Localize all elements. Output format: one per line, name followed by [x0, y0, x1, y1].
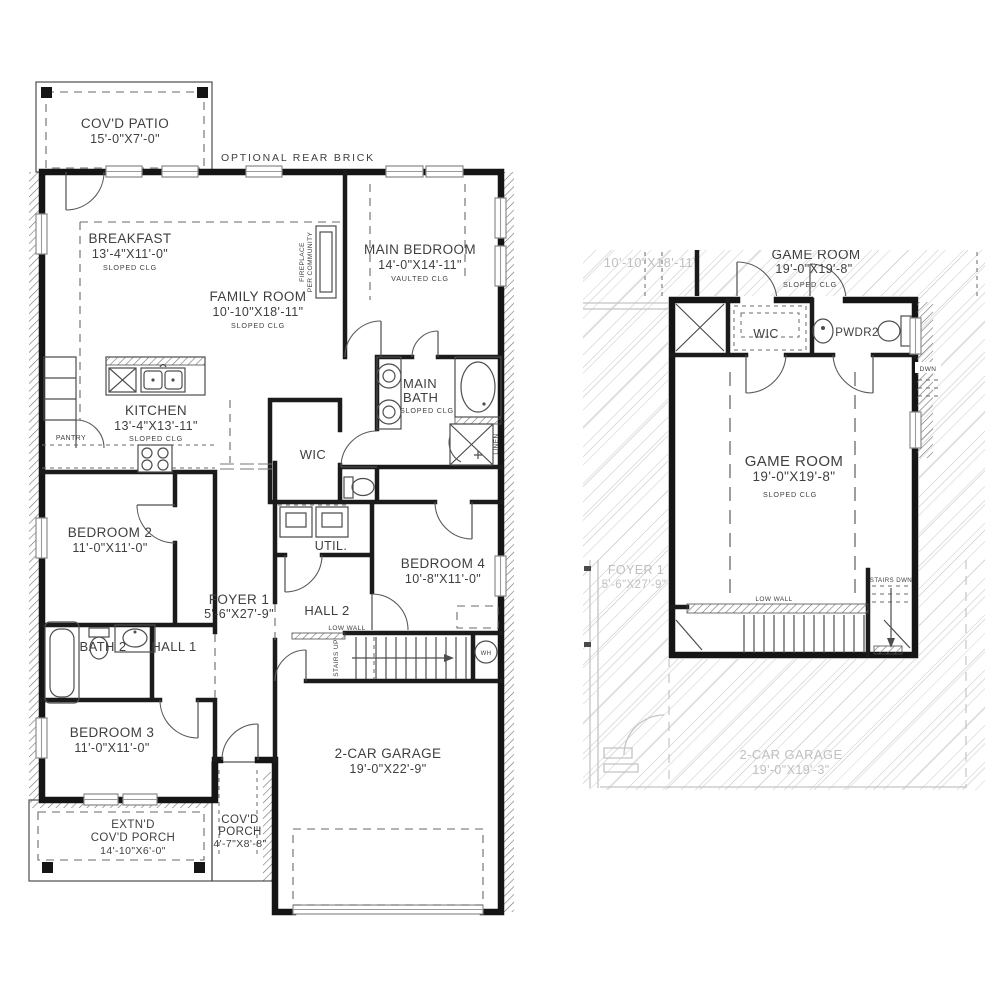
clipped-game-room-name: GAME ROOM	[771, 247, 860, 262]
covd-patio-dims: 15'-0"X7'-0"	[90, 132, 160, 146]
main-bedroom-dims: 14'-0"X14'-11"	[378, 258, 462, 272]
bedroom4-name: BEDROOM 4	[401, 556, 486, 571]
family-room-name: FAMILY ROOM	[210, 289, 307, 304]
ghost-foyer-dims: 5'-6"X27'-9"	[602, 579, 667, 591]
bath2-label: BATH 2	[80, 639, 127, 654]
main-bedroom-clg: VAULTED CLG	[391, 274, 449, 283]
foyer-dims: 5'-6"X27'-9"	[204, 607, 274, 621]
bath2-tub	[45, 622, 79, 703]
foyer-name: FOYER 1	[209, 592, 270, 607]
ghost-jamb-2	[584, 642, 591, 647]
extnd-porch-name-2: COV'D PORCH	[91, 832, 176, 844]
porch-post-right	[194, 862, 205, 873]
breakfast-name: BREAKFAST	[88, 231, 171, 246]
pantry-label: PANTRY	[56, 435, 86, 442]
covd-porch-name-1: COV'D	[221, 814, 258, 826]
floorplan-page: FIREPLACE PER COMMUNITY	[0, 0, 1000, 1000]
garage-door-dashed	[293, 829, 483, 905]
pantry-shelves	[44, 357, 76, 420]
fireplace-note-line2: PER COMMUNITY	[307, 232, 314, 293]
bedroom2-name: BEDROOM 2	[68, 525, 153, 540]
stairs-up: STAIRS UP	[292, 633, 466, 679]
stairs-dwn-label: STAIRS DWN	[870, 577, 912, 584]
island-cabinet-x	[109, 368, 136, 392]
f2-low-wall-label: LOW WALL	[755, 596, 792, 603]
first-floor-plan: FIREPLACE PER COMMUNITY	[29, 82, 514, 914]
ghost-jamb-1	[584, 566, 591, 571]
low-wall-label: LOW WALL	[328, 625, 365, 632]
linen-label: LINEN	[493, 433, 500, 454]
stair-arrowhead	[444, 654, 454, 662]
extnd-porch-name-1: EXTN'D	[111, 819, 155, 831]
game-room-name: GAME ROOM	[745, 453, 844, 470]
breakfast-clg: SLOPED CLG	[103, 263, 157, 272]
main-bath-vanity	[377, 357, 401, 429]
f2-low-wall-strip	[687, 604, 868, 613]
hall1-label: HALL 1	[151, 639, 196, 654]
util-label: UTIL.	[315, 539, 348, 553]
main-bedroom-name: MAIN BEDROOM	[364, 242, 476, 257]
ghost-garage-dims: 19'-0"X19'-3"	[752, 763, 829, 777]
sink-1	[377, 364, 401, 388]
family-room-dims: 10'-10"X18'-11"	[213, 305, 304, 319]
wic2-label: WIC	[753, 327, 779, 341]
utility-machines	[278, 505, 350, 537]
ghost-foyer-name: FOYER 1	[608, 563, 664, 577]
floorplan-drawing: FIREPLACE PER COMMUNITY	[0, 0, 1000, 1000]
clipped-game-room-dims: 19'-0"X19'-8"	[775, 262, 852, 276]
stairs-up-label: STAIRS UP	[333, 639, 340, 676]
ghost-garage-name: 2-CAR GARAGE	[739, 747, 842, 762]
main-bath-name-2: BATH	[403, 390, 438, 405]
range	[42, 445, 215, 472]
bedroom3-name: BEDROOM 3	[70, 725, 155, 740]
clipped-game-room-clg: SLOPED CLG	[783, 280, 837, 289]
cased-opening-marks	[220, 464, 272, 469]
main-bath-tub	[455, 357, 501, 424]
kitchen-name: KITCHEN	[125, 403, 187, 418]
island-hatch	[106, 357, 205, 365]
hall2-label: HALL 2	[304, 603, 349, 618]
bedroom4-dims: 10'-8"X11'-0"	[405, 572, 481, 586]
garage-dims: 19'-0"X22'-9"	[349, 762, 426, 776]
family-room-clg: SLOPED CLG	[231, 321, 285, 330]
kitchen-clg: SLOPED CLG	[129, 434, 183, 443]
extnd-porch-dims: 14'-10"X6'-0"	[100, 845, 166, 857]
patio-post-left	[41, 87, 52, 98]
breakfast-dims: 13'-4"X11'-0"	[92, 247, 168, 261]
covd-porch-name-2: PORCH	[218, 826, 262, 838]
fireplace-box	[316, 226, 336, 298]
main-bath-shower	[449, 424, 493, 465]
patio-post-right	[197, 87, 208, 98]
fireplace: FIREPLACE PER COMMUNITY	[299, 226, 336, 298]
bedroom3-dims: 11'-0"X11'-0"	[74, 741, 149, 755]
bedroom4-closet-dashed	[457, 606, 498, 628]
bedroom2-dims: 11'-0"X11'-0"	[72, 541, 147, 555]
ghost-family-dims: 10'-10"X18'-11"	[604, 255, 698, 270]
sink-2	[377, 400, 401, 424]
water-heater: WH	[475, 641, 497, 663]
wc-toilet	[344, 477, 374, 498]
counter-dashed	[42, 445, 215, 468]
pwdr2-label: PWDR2	[835, 327, 879, 339]
kitchen-dims: 13'-4"X13'-11"	[114, 419, 198, 433]
game-room-clg: SLOPED CLG	[763, 490, 817, 499]
second-floor-plan: 10'-10"X18'-11" FOYER 1 5'-6"X27'-9" 2-C…	[583, 247, 985, 790]
fireplace-note-line1: FIREPLACE	[299, 242, 306, 282]
main-bath-clg: SLOPED CLG	[400, 406, 454, 415]
main-bath-name-1: MAIN	[403, 376, 437, 391]
wic-label: WIC	[300, 447, 326, 462]
low-wall-strip	[292, 633, 345, 639]
optional-rear-brick-label: OPTIONAL REAR BRICK	[221, 152, 375, 164]
kitchen-sink	[141, 365, 185, 393]
dwn-label: DWN	[920, 366, 937, 373]
kitchen-island	[106, 357, 205, 395]
covd-porch-dims: 4'-7"X8'-8"	[213, 838, 266, 850]
garage-door	[293, 829, 483, 914]
garage-name: 2-CAR GARAGE	[335, 746, 442, 761]
game-room-dims: 19'-0"X19'-8"	[753, 469, 836, 484]
covd-patio-name: COV'D PATIO	[81, 116, 169, 131]
fireplace-inner	[320, 232, 332, 292]
porch-post-left	[42, 862, 53, 873]
f2-stair-hatch-block	[874, 646, 902, 654]
wh-label: WH	[481, 651, 492, 657]
